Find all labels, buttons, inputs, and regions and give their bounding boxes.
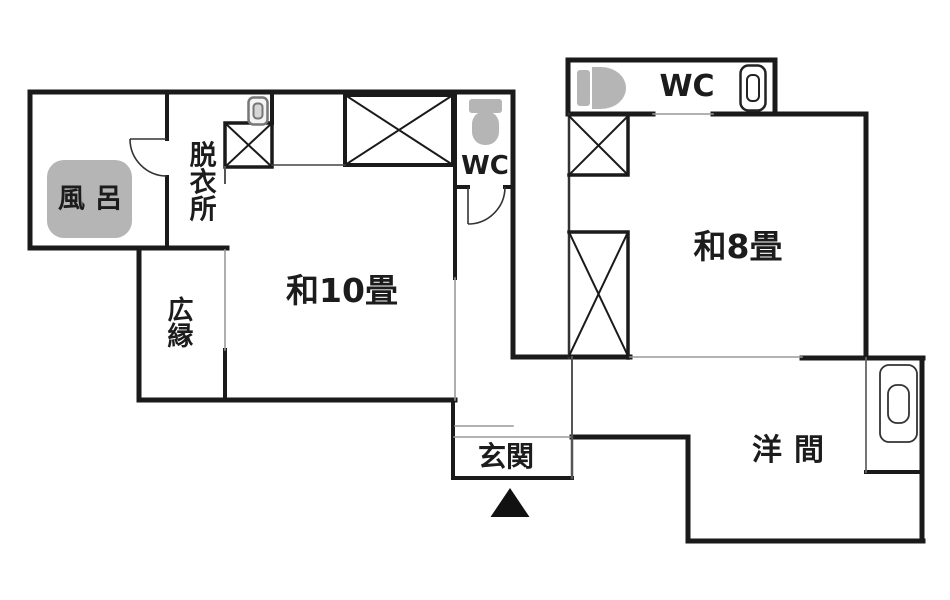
washbasin-icon (880, 365, 917, 442)
fixtures (47, 66, 917, 518)
entrance-direction-marker (491, 488, 530, 517)
closet-cross-icon (225, 123, 272, 167)
toilet-icon (577, 67, 626, 109)
closets (225, 95, 628, 358)
interior-walls (167, 92, 922, 478)
toilet-icon (469, 99, 502, 145)
door-swing-icon (468, 187, 505, 224)
doors (130, 139, 505, 224)
open-boundaries (225, 114, 866, 478)
closet-cross-icon (569, 114, 628, 358)
floorplan-drawing (0, 0, 950, 600)
closet-cross-icon (569, 232, 628, 358)
bathtub-icon (47, 160, 132, 238)
washbasin-icon (741, 66, 766, 111)
washbasin-icon (249, 98, 268, 125)
closet-cross-icon (345, 95, 453, 165)
floorplan: 風呂 脱衣所 広縁 和10畳 WC WC 和8畳 玄関 洋間 (0, 0, 950, 600)
door-swing-icon (130, 139, 167, 176)
